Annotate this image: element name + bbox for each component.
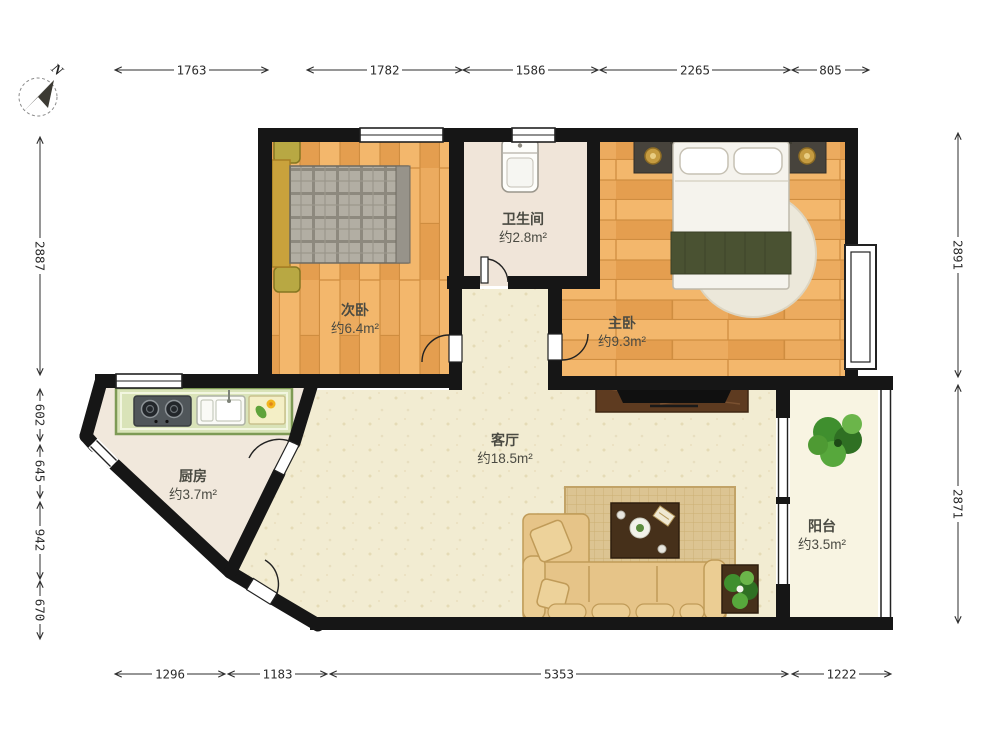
window-kitchen [116,374,182,388]
dim-top-2: 1586 [515,63,545,78]
dim-left-0: 2887 [33,241,48,271]
wall-hall-master-a [548,289,562,334]
bay-window-master [845,245,876,369]
area-kitchen: 约3.7m² [169,487,218,502]
area-second-bedroom: 约6.4m² [331,321,380,336]
wall-kitchen-top-b [182,374,462,388]
lamp-glow [804,153,810,159]
wall-top [258,128,858,142]
area-master-bedroom: 约9.3m² [598,334,647,349]
dim-bottom-3: 1222 [826,667,856,682]
label-balcony: 阳台 [808,518,836,534]
window-living-balcony [776,418,790,584]
dim-left-4: 670 [33,599,48,622]
pillow [734,148,782,174]
dim-top-3: 2265 [680,63,710,78]
wall-master-bottom [548,376,893,390]
cup [617,511,625,519]
area-living-room: 约18.5m² [477,451,533,466]
bed-mattress [290,166,408,263]
dim-bottom-1: 1183 [262,667,292,682]
window-balcony-right [878,390,893,617]
dim-bottom-0: 1296 [155,667,185,682]
label-bathroom: 卫生间 [502,211,544,227]
kitchen-counter [116,388,292,434]
label-kitchen: 厨房 [179,468,207,484]
cup [658,545,666,553]
window-bathroom [512,128,555,142]
window-transom [776,497,790,504]
wall-bottom [310,617,893,630]
label-second-bedroom: 次卧 [341,302,369,318]
compass: N [19,61,66,116]
washbasin [502,138,538,192]
coffee-table [611,503,679,558]
stove [134,396,191,426]
pillow [680,148,728,174]
wall-bath-right [587,128,600,289]
bed-blanket [671,232,791,274]
floorplan-page: N [0,0,1000,750]
wall-bath-bottom-b [508,276,600,289]
label-living-room: 客厅 [490,432,519,448]
floorplan-svg: N [0,0,1000,750]
plant-side-table [722,565,758,613]
window-bedroom2 [360,128,443,142]
bed-headboard [272,160,290,267]
dim-top-1: 1782 [369,63,399,78]
lamp-glow [650,153,656,159]
kitchen-sink [197,390,245,425]
dim-right-1: 2871 [951,489,966,519]
dim-bottom-2: 5353 [544,667,574,682]
dim-top-4: 805 [819,63,842,78]
area-balcony: 约3.5m² [798,537,847,552]
wall-bath-left [449,128,464,289]
wall-bath-bottom-a [447,276,480,289]
compass-north-label: N [47,61,66,80]
faucet-dot [518,143,522,147]
dim-right-0: 2891 [951,240,966,270]
label-master-bedroom: 主卧 [608,315,636,331]
dim-left-1: 602 [33,404,48,427]
plate-food [636,524,644,532]
nightstand [274,267,300,292]
wall-bedroom2-right-a [449,283,462,335]
wall-bedroom2-left [258,128,272,388]
pot-dot [737,586,744,593]
dim-top-0: 1763 [176,63,206,78]
bed-blanket-fold [396,166,410,263]
wall-master-right [845,128,858,252]
dim-left-2: 645 [33,460,48,483]
north-arrow-shade [38,80,54,108]
area-bathroom: 约2.8m² [499,230,548,245]
cutting-board [249,396,285,424]
dim-left-3: 942 [33,529,48,552]
wall-balcony-divider-a [776,390,790,418]
